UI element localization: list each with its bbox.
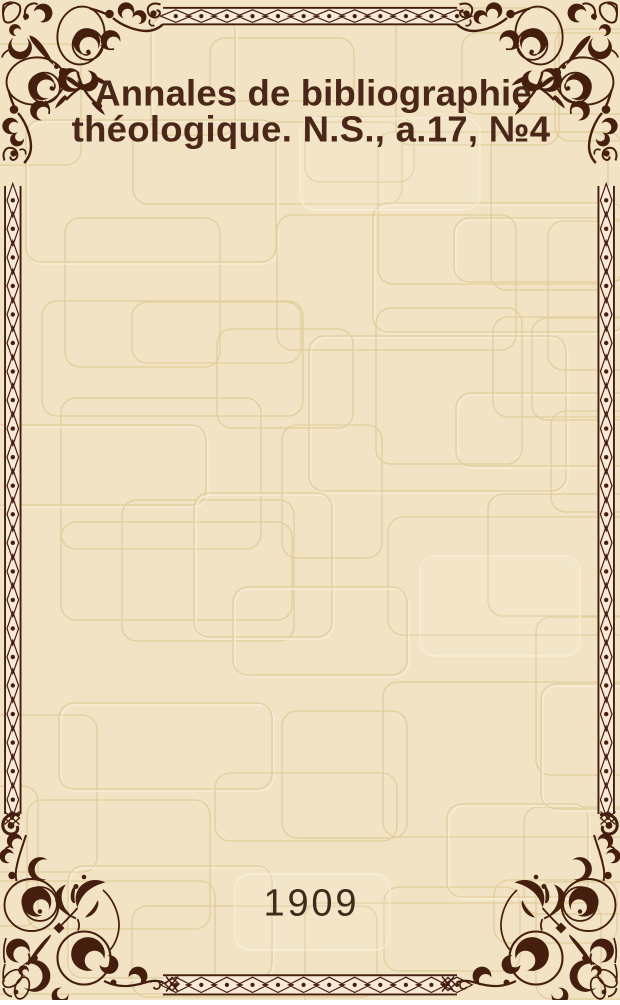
svg-text:1909: 1909 [264,883,360,925]
svg-text:théologique. N.S., a.17, №4: théologique. N.S., a.17, №4 [72,109,551,150]
svg-text:Annales de bibliographie: Annales de bibliographie [94,73,532,114]
